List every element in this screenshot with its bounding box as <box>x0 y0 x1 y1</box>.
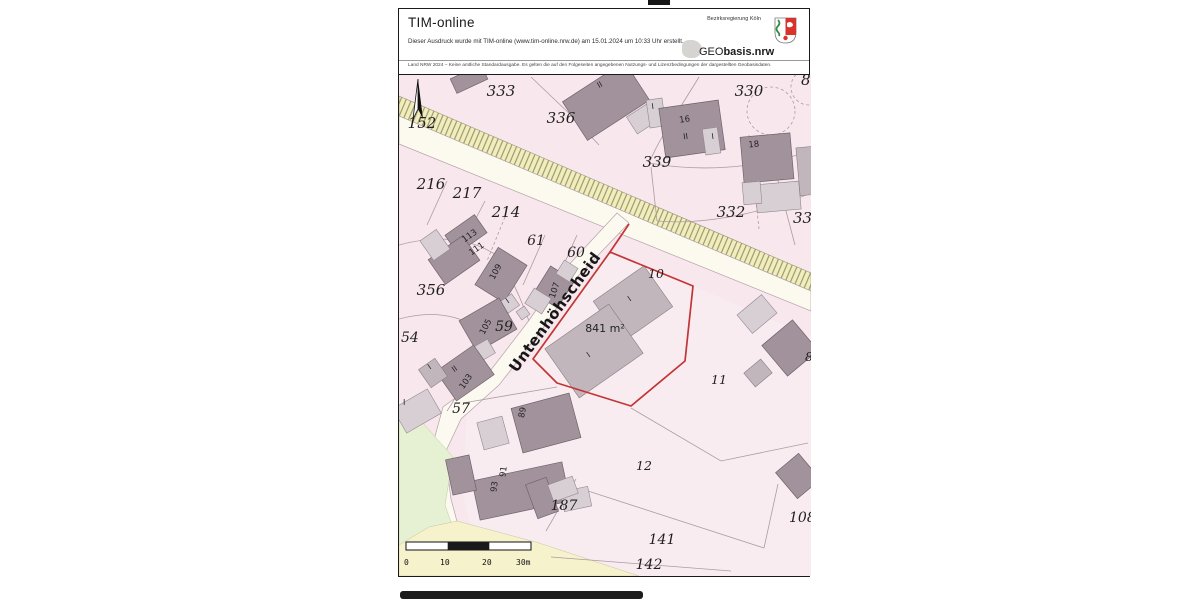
parcel-label: 339 <box>643 153 672 171</box>
building-annex <box>742 181 762 204</box>
parcel-label: 214 <box>491 203 521 221</box>
previous-page-edge <box>648 0 670 5</box>
next-page-edge <box>400 591 643 599</box>
parcel-label: 108 <box>789 510 811 526</box>
geobasis-logo-suffix: basis.nrw <box>723 46 774 58</box>
agency-label: Bezirksregierung Köln <box>699 16 769 22</box>
scale-tick: 20 <box>482 558 492 567</box>
cadastral-map: 333 336 330 86 152 339 216 217 214 61 60… <box>399 75 811 576</box>
parcel-label: 142 <box>636 557 663 573</box>
parcel-label: 11 <box>711 372 727 387</box>
parcel-label: 336 <box>547 109 576 127</box>
parcel-label: 54 <box>401 330 419 346</box>
map-print-page: TIM-online Dieser Ausdruck wurde mit TIM… <box>398 8 810 577</box>
parcel-label: 187 <box>551 498 578 514</box>
parcel-label: 86 <box>801 75 811 89</box>
parcel-label: 356 <box>417 281 446 299</box>
parcel-area-label: 841 m² <box>585 322 625 335</box>
geobasis-logo: GEObasis.nrw <box>699 46 774 58</box>
parcel-label: 216 <box>416 175 446 193</box>
parcel-label: 61 <box>527 233 545 249</box>
house-number: 18 <box>748 140 760 151</box>
house-number: 16 <box>679 114 691 125</box>
parcel-label: 330 <box>735 82 764 100</box>
scale-tick: 0 <box>404 558 409 567</box>
print-note: Dieser Ausdruck wurde mit TIM-online (ww… <box>408 37 688 46</box>
print-header: TIM-online Dieser Ausdruck wurde mit TIM… <box>399 9 809 75</box>
nrw-coat-of-arms-icon <box>774 17 797 44</box>
parcel-label: 57 <box>452 401 470 417</box>
screenshot-canvas: TIM-online Dieser Ausdruck wurde mit TIM… <box>0 0 1200 600</box>
parcel-label: 332 <box>717 203 746 221</box>
house-number: 93 <box>489 481 500 493</box>
parcel-label: 217 <box>452 184 482 202</box>
scale-tick: 30m <box>516 558 531 567</box>
parcel-label: 333 <box>487 82 516 100</box>
parcel-label: 33 <box>793 209 811 227</box>
parcel-label: 12 <box>636 458 652 473</box>
house-number: 91 <box>498 466 509 478</box>
parcel-label-highlighted: 10 <box>648 266 664 281</box>
geobasis-logo-prefix: GEO <box>699 46 723 58</box>
floor-label: I <box>403 398 405 407</box>
scale-tick: 10 <box>440 558 450 567</box>
parcel-label: 141 <box>649 532 676 548</box>
parcel-label: 8 <box>805 349 811 364</box>
parcel-label: 59 <box>495 319 513 335</box>
page-title: TIM-online <box>408 15 475 30</box>
license-disclaimer: Land NRW 2024 – Keine amtliche Standarda… <box>399 60 809 68</box>
